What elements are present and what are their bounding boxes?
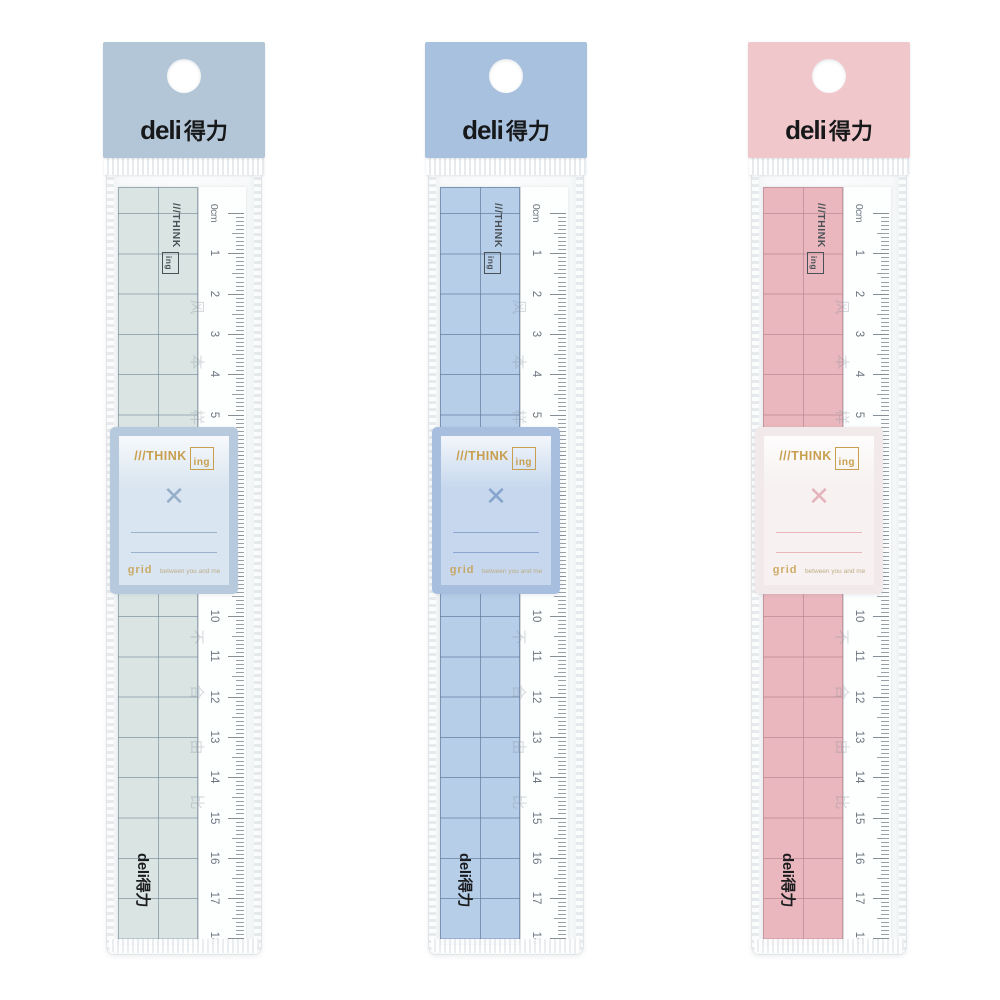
plastic-sleeve: 0cm123456789101112131415161718 ///THINK … (751, 158, 907, 955)
tick-mark (881, 261, 889, 262)
tick-mark (558, 725, 566, 726)
tick-mark (558, 693, 566, 694)
tick-mark (550, 616, 566, 617)
tick-mark (877, 596, 889, 597)
tick-mark (236, 249, 244, 250)
tick-mark (236, 830, 244, 831)
tick-mark (881, 761, 889, 762)
hang-card: deli得力 (425, 42, 587, 158)
tick-mark (881, 854, 889, 855)
label-card: ///THINK ing ✕ grid between you and me (110, 427, 238, 594)
tick-mark (558, 689, 566, 690)
tick-mark (550, 898, 566, 899)
tick-mark (558, 809, 566, 810)
tick-mark (236, 628, 244, 629)
tick-mark (881, 346, 889, 347)
tick-mark (558, 406, 566, 407)
tick-mark (881, 660, 889, 661)
tick-mark (558, 846, 566, 847)
tick-mark (873, 334, 889, 335)
tick-mark (881, 410, 889, 411)
tick-mark (554, 717, 566, 718)
tick-mark (881, 922, 889, 923)
tick-mark (228, 213, 244, 214)
tick-mark (228, 777, 244, 778)
card-write-line (776, 552, 862, 553)
tick-mark (558, 249, 566, 250)
tick-mark (236, 701, 244, 702)
tick-mark (554, 273, 566, 274)
tick-mark (236, 705, 244, 706)
card-tagline: grid between you and me (119, 560, 229, 578)
tick-mark (558, 265, 566, 266)
tick-mark (550, 858, 566, 859)
tick-mark (236, 874, 244, 875)
ruler-think-prefix: ///THINK (815, 203, 827, 248)
tick-mark (881, 604, 889, 605)
tick-mark (881, 322, 889, 323)
tick-mark (558, 398, 566, 399)
tick-mark (881, 813, 889, 814)
tick-mark (558, 652, 566, 653)
tick-mark (881, 628, 889, 629)
tick-mark (881, 338, 889, 339)
tick-mark (877, 233, 889, 234)
tick-mark (881, 217, 889, 218)
scale-number: 11 (853, 641, 865, 671)
card-think-ing-box: ing (512, 447, 536, 470)
tick-mark (558, 672, 566, 673)
tick-mark (881, 902, 889, 903)
tick-mark (881, 826, 889, 827)
tick-mark (558, 225, 566, 226)
tick-mark (881, 765, 889, 766)
tick-mark (881, 846, 889, 847)
sleeve-right-crimp (899, 159, 906, 954)
scale-number: 0cm (530, 198, 542, 228)
tick-mark (236, 624, 244, 625)
tick-mark (558, 685, 566, 686)
tick-mark (873, 818, 889, 819)
tick-mark (877, 314, 889, 315)
brand-logo-latin: deli (462, 115, 503, 145)
tick-mark (558, 733, 566, 734)
tick-mark (558, 660, 566, 661)
tick-mark (877, 797, 889, 798)
scale-number: 16 (208, 843, 220, 873)
tick-mark (881, 801, 889, 802)
tick-mark (558, 282, 566, 283)
tick-mark (236, 390, 244, 391)
tick-mark (558, 318, 566, 319)
card-tagline: grid between you and me (441, 560, 551, 578)
tick-mark (881, 237, 889, 238)
tick-mark (232, 394, 244, 395)
tick-mark (236, 826, 244, 827)
ruler-package: 0cm123456789101112131415161718 ///THINK … (748, 42, 910, 955)
tick-mark (881, 350, 889, 351)
tick-mark (228, 737, 244, 738)
tick-mark (558, 386, 566, 387)
tick-mark (881, 652, 889, 653)
scale-number: 3 (208, 319, 220, 349)
tick-mark (881, 386, 889, 387)
tick-mark (558, 745, 566, 746)
crimped-seal-edge (426, 157, 586, 175)
tick-mark (236, 604, 244, 605)
tick-mark (881, 894, 889, 895)
label-card: ///THINK ing ✕ grid between you and me (432, 427, 560, 594)
tick-mark (558, 644, 566, 645)
scale-number: 15 (853, 803, 865, 833)
tick-mark (558, 427, 566, 428)
ruler-think-ing-box: ing (485, 252, 502, 274)
tick-mark (236, 765, 244, 766)
tick-mark (881, 769, 889, 770)
tick-mark (881, 608, 889, 609)
tick-mark (881, 834, 889, 835)
tick-mark (877, 354, 889, 355)
tick-mark (881, 685, 889, 686)
card-think-logo: ///THINK ing (119, 449, 229, 470)
tick-mark (550, 818, 566, 819)
tick-mark (558, 362, 566, 363)
tick-mark (236, 685, 244, 686)
tick-mark (232, 636, 244, 637)
tick-mark (236, 930, 244, 931)
tick-mark (877, 273, 889, 274)
tick-mark (236, 644, 244, 645)
tick-mark (236, 854, 244, 855)
tick-mark (881, 257, 889, 258)
tick-mark (236, 680, 244, 681)
tick-mark (881, 624, 889, 625)
ruler-think-label: ///THINK ing (165, 203, 182, 299)
tick-mark (873, 374, 889, 375)
tick-mark (881, 269, 889, 270)
hang-hole (167, 59, 201, 93)
scale-number: 1 (208, 238, 220, 268)
tick-mark (236, 608, 244, 609)
scale-number: 11 (530, 641, 542, 671)
tick-mark (236, 753, 244, 754)
tick-mark (236, 237, 244, 238)
card-tagline-lead: grid (128, 564, 153, 576)
tick-mark (873, 213, 889, 214)
tick-mark (558, 761, 566, 762)
card-think-logo: ///THINK ing (764, 449, 874, 470)
hang-card: deli得力 (748, 42, 910, 158)
tick-mark (558, 419, 566, 420)
tick-mark (236, 741, 244, 742)
tick-mark (558, 680, 566, 681)
tick-mark (236, 813, 244, 814)
tick-mark (236, 620, 244, 621)
card-tagline-rest: between you and me (805, 568, 865, 575)
tick-mark (558, 382, 566, 383)
tick-mark (881, 277, 889, 278)
tick-mark (873, 294, 889, 295)
scale-number: 12 (208, 682, 220, 712)
tick-mark (558, 261, 566, 262)
tick-mark (236, 926, 244, 927)
tick-mark (554, 797, 566, 798)
scale-number: 15 (530, 803, 542, 833)
tick-mark (881, 298, 889, 299)
tick-mark (558, 286, 566, 287)
tick-mark (236, 689, 244, 690)
tick-mark (236, 265, 244, 266)
tick-mark (550, 777, 566, 778)
tick-mark (877, 878, 889, 879)
tick-mark (881, 612, 889, 613)
tick-mark (558, 930, 566, 931)
card-think-ing-box: ing (835, 447, 859, 470)
tick-mark (873, 737, 889, 738)
tick-mark (558, 890, 566, 891)
tick-mark (558, 886, 566, 887)
tick-mark (881, 382, 889, 383)
tick-mark (881, 890, 889, 891)
tick-mark (236, 600, 244, 601)
ruler-think-label: ///THINK ing (810, 203, 827, 299)
tick-mark (558, 793, 566, 794)
tick-mark (236, 298, 244, 299)
scale-number: 13 (530, 722, 542, 752)
scale-number: 0cm (208, 198, 220, 228)
sleeve-bottom-seal (109, 939, 259, 953)
tick-mark (558, 277, 566, 278)
tick-mark (881, 406, 889, 407)
tick-mark (881, 793, 889, 794)
tick-mark (236, 761, 244, 762)
tick-mark (881, 648, 889, 649)
scale-number: 1 (853, 238, 865, 268)
scale-number: 10 (208, 601, 220, 631)
tick-mark (558, 709, 566, 710)
tick-mark (228, 253, 244, 254)
tick-mark (873, 253, 889, 254)
scale-number: 14 (853, 762, 865, 792)
card-tagline-lead: grid (450, 564, 475, 576)
scale-number: 5 (208, 400, 220, 430)
sleeve-bottom-seal (431, 939, 581, 953)
tick-mark (554, 918, 566, 919)
tick-mark (550, 294, 566, 295)
ruler-think-label: ///THINK ing (487, 203, 504, 299)
scale-number: 3 (853, 319, 865, 349)
crimped-seal-edge (749, 157, 909, 175)
tick-mark (558, 902, 566, 903)
scale-number: 14 (530, 762, 542, 792)
tick-mark (881, 290, 889, 291)
tick-mark (236, 282, 244, 283)
tick-mark (881, 419, 889, 420)
tick-mark (236, 342, 244, 343)
tick-mark (236, 749, 244, 750)
tick-mark (881, 805, 889, 806)
scale-number: 13 (853, 722, 865, 752)
tick-mark (554, 676, 566, 677)
tick-mark (232, 676, 244, 677)
tick-mark (881, 781, 889, 782)
tick-mark (236, 773, 244, 774)
tick-mark (236, 693, 244, 694)
tick-mark (236, 713, 244, 714)
tick-mark (228, 656, 244, 657)
tick-mark (558, 217, 566, 218)
tick-mark (232, 273, 244, 274)
tick-mark (881, 362, 889, 363)
scale-number: 17 (853, 883, 865, 913)
tick-mark (881, 753, 889, 754)
tick-mark (554, 394, 566, 395)
tick-mark (881, 749, 889, 750)
tick-mark (881, 358, 889, 359)
plastic-sleeve: 0cm123456789101112131415161718 ///THINK … (428, 158, 584, 955)
tick-mark (558, 862, 566, 863)
tick-mark (558, 765, 566, 766)
card-think-prefix: ///THINK (779, 449, 832, 463)
tick-mark (236, 725, 244, 726)
tick-mark (558, 664, 566, 665)
tick-mark (558, 410, 566, 411)
tick-mark (558, 729, 566, 730)
tick-mark (881, 366, 889, 367)
tick-mark (554, 757, 566, 758)
scale-number: 10 (530, 601, 542, 631)
tick-mark (236, 398, 244, 399)
brand-logo-latin: deli (140, 115, 181, 145)
tick-mark (236, 229, 244, 230)
tick-mark (881, 773, 889, 774)
tick-mark (558, 801, 566, 802)
tick-mark (558, 906, 566, 907)
tick-mark (881, 398, 889, 399)
tick-mark (558, 749, 566, 750)
tick-mark (228, 818, 244, 819)
tick-mark (236, 733, 244, 734)
tick-mark (236, 709, 244, 710)
tick-mark (236, 378, 244, 379)
hang-hole (812, 59, 846, 93)
tick-mark (881, 689, 889, 690)
tick-mark (236, 870, 244, 871)
tick-mark (881, 249, 889, 250)
tick-mark (558, 781, 566, 782)
tick-mark (881, 245, 889, 246)
tick-mark (881, 664, 889, 665)
scale-number: 17 (208, 883, 220, 913)
tick-mark (558, 910, 566, 911)
scale-number: 14 (208, 762, 220, 792)
product-photo: 0cm123456789101112131415161718 ///THINK … (0, 0, 1000, 1000)
tick-mark (873, 858, 889, 859)
scale-number: 12 (530, 682, 542, 712)
tick-mark (881, 427, 889, 428)
tick-mark (550, 334, 566, 335)
tick-mark (554, 354, 566, 355)
brand-logo-latin: deli (785, 115, 826, 145)
tick-mark (881, 862, 889, 863)
tick-mark (558, 221, 566, 222)
tick-mark (881, 910, 889, 911)
tick-mark (236, 793, 244, 794)
tick-mark (881, 632, 889, 633)
tick-mark (554, 636, 566, 637)
tick-mark (558, 302, 566, 303)
tick-mark (236, 785, 244, 786)
tick-mark (881, 221, 889, 222)
tick-mark (873, 415, 889, 416)
tick-mark (558, 338, 566, 339)
tick-mark (558, 813, 566, 814)
tick-mark (881, 402, 889, 403)
scale-number: 13 (208, 722, 220, 752)
tick-mark (236, 269, 244, 270)
tick-mark (236, 221, 244, 222)
tick-mark (558, 934, 566, 935)
tick-mark (236, 922, 244, 923)
tick-mark (236, 822, 244, 823)
tick-mark (881, 789, 889, 790)
ruler-think-ing-box: ing (163, 252, 180, 274)
scale-number: 17 (530, 883, 542, 913)
tick-mark (881, 378, 889, 379)
tick-mark (881, 741, 889, 742)
tick-mark (232, 354, 244, 355)
tick-mark (558, 850, 566, 851)
tick-mark (881, 423, 889, 424)
card-write-line (131, 532, 217, 533)
tick-mark (558, 894, 566, 895)
tick-mark (236, 350, 244, 351)
scale-number: 0cm (853, 198, 865, 228)
tick-mark (558, 914, 566, 915)
tick-mark (558, 769, 566, 770)
tick-mark (558, 245, 566, 246)
scale-number: 10 (853, 601, 865, 631)
tick-mark (236, 592, 244, 593)
tick-mark (881, 906, 889, 907)
tick-mark (881, 342, 889, 343)
tick-mark (881, 693, 889, 694)
tick-mark (881, 390, 889, 391)
tick-mark (558, 926, 566, 927)
tick-mark (550, 213, 566, 214)
tick-mark (877, 676, 889, 677)
tick-mark (881, 600, 889, 601)
card-tagline-lead: grid (773, 564, 798, 576)
ruler-bottom-logo: deli得力 (779, 853, 799, 939)
card-think-ing-box: ing (190, 447, 214, 470)
tick-mark (558, 592, 566, 593)
tick-mark (558, 648, 566, 649)
x-mark-icon: ✕ (441, 483, 551, 509)
card-write-line (453, 532, 539, 533)
tick-mark (236, 789, 244, 790)
tick-mark (236, 850, 244, 851)
tick-mark (236, 306, 244, 307)
tick-mark (558, 789, 566, 790)
tick-mark (236, 257, 244, 258)
tick-mark (232, 757, 244, 758)
tick-mark (881, 302, 889, 303)
ruler-package: 0cm123456789101112131415161718 ///THINK … (425, 42, 587, 955)
tick-mark (558, 668, 566, 669)
tick-mark (881, 318, 889, 319)
tick-mark (236, 664, 244, 665)
